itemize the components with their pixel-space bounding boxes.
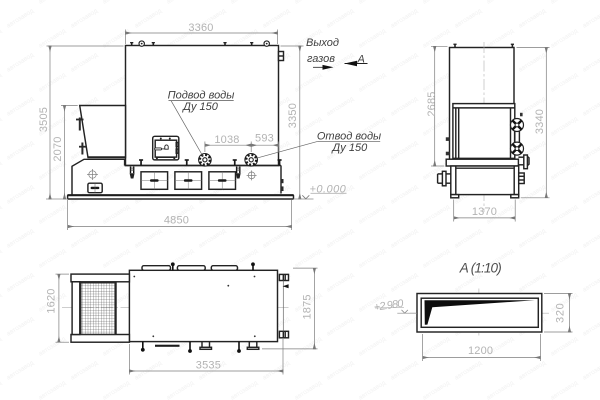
svg-text:Выход: Выход — [306, 37, 339, 49]
svg-text:593: 593 — [255, 133, 274, 145]
svg-text:Ду 150: Ду 150 — [181, 101, 219, 113]
svg-text:А (1:10): А (1:10) — [459, 261, 502, 276]
svg-text:320: 320 — [555, 303, 567, 323]
svg-text:3350: 3350 — [287, 103, 299, 128]
svg-text:4850: 4850 — [164, 215, 189, 227]
svg-text:1370: 1370 — [472, 206, 497, 218]
svg-text:1875: 1875 — [302, 294, 314, 319]
svg-text:газов: газов — [307, 53, 335, 65]
svg-text:1620: 1620 — [46, 288, 58, 313]
svg-text:1200: 1200 — [468, 345, 493, 357]
svg-text:3340: 3340 — [534, 109, 546, 134]
svg-text:2685: 2685 — [426, 91, 438, 116]
svg-text:3360: 3360 — [188, 22, 213, 34]
svg-text:Ду 150: Ду 150 — [330, 142, 368, 154]
svg-text:Подвод воды: Подвод воды — [168, 90, 235, 102]
svg-text:Отвод воды: Отвод воды — [317, 131, 381, 143]
svg-text:3505: 3505 — [38, 107, 50, 132]
svg-text:1038: 1038 — [214, 134, 239, 146]
svg-text:3535: 3535 — [196, 360, 221, 372]
svg-text:А: А — [357, 54, 365, 66]
svg-text:2070: 2070 — [52, 136, 64, 161]
